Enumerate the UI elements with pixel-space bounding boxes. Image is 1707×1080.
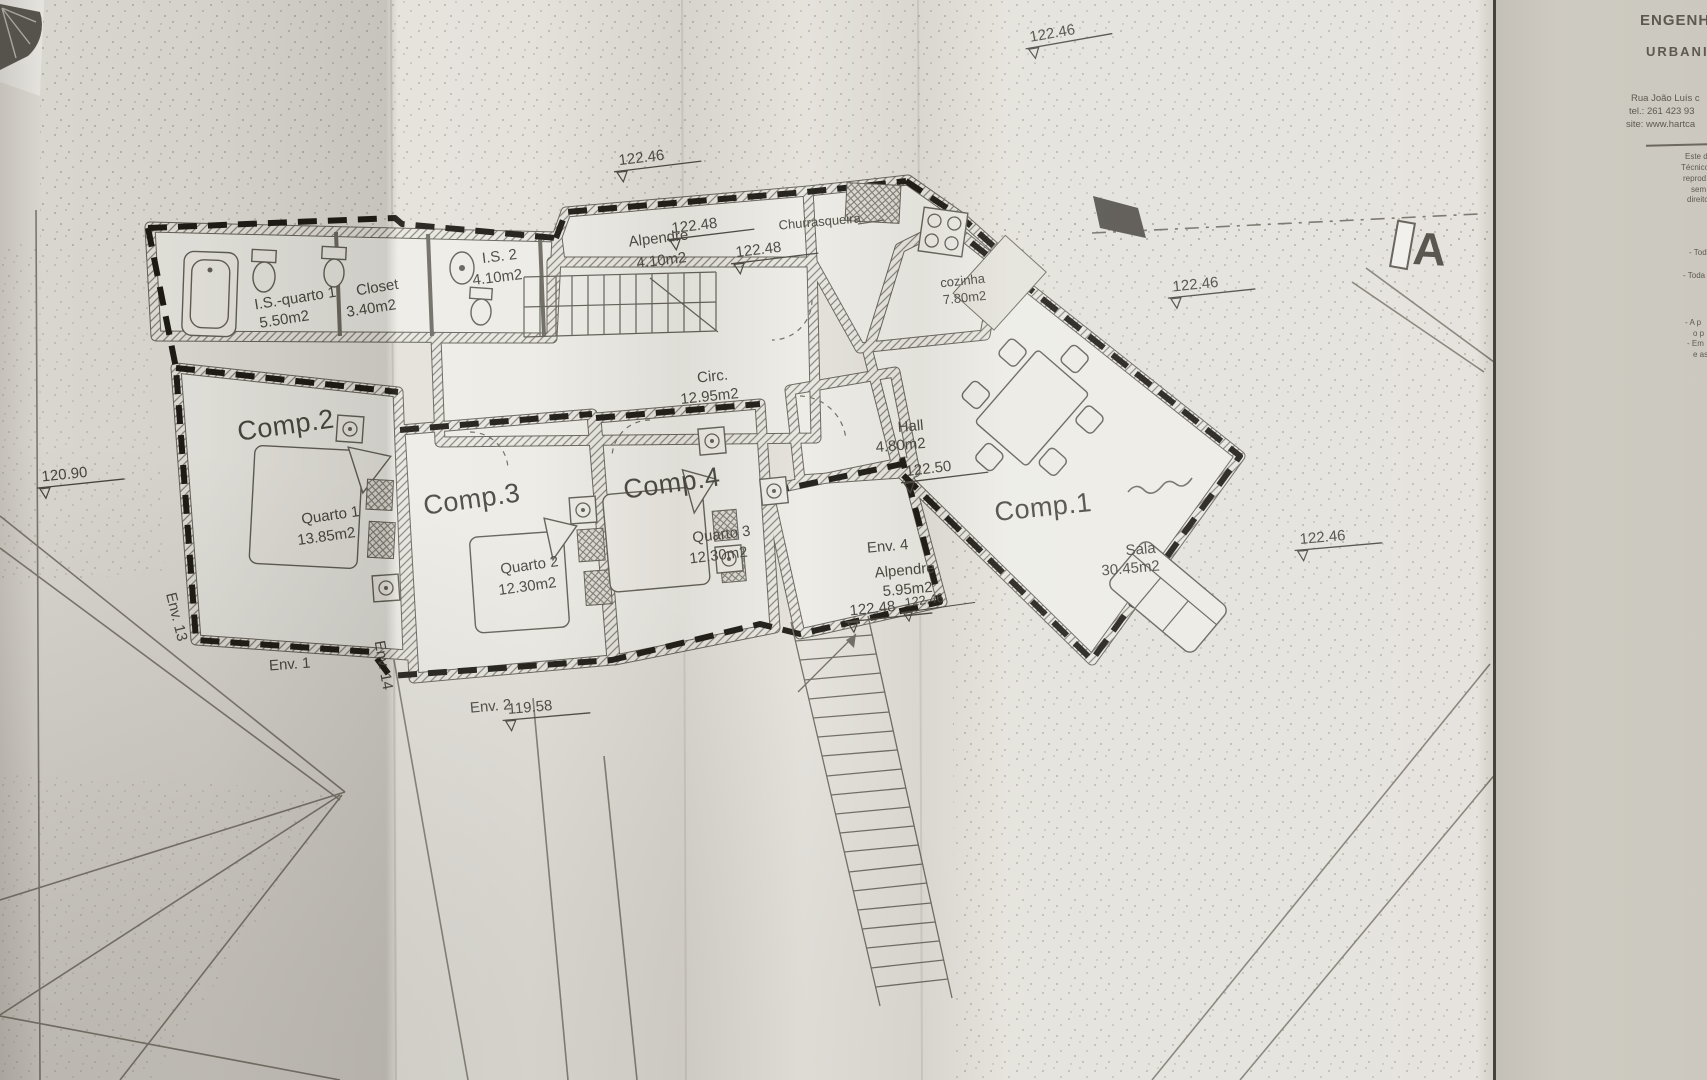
svg-text:119.58: 119.58: [507, 697, 553, 718]
stove-icon: [918, 207, 968, 257]
title-block-bullet: - A p: [1685, 318, 1701, 327]
label-env4: Env. 4: [866, 536, 909, 557]
label-env1: Env. 1: [268, 655, 311, 675]
elevation-marker: 119.58: [501, 694, 591, 732]
label-hall: Hall: [897, 417, 924, 436]
title-block-note: direito: [1687, 195, 1707, 204]
title-block-note: sem: [1691, 185, 1706, 194]
title-block-bullet: - Toda: [1683, 271, 1705, 280]
folded-corner-fan: [0, 0, 44, 96]
title-block-address: Rua João Luís c: [1631, 93, 1700, 104]
label-sala: Sala: [1125, 540, 1157, 560]
label-circ: Circ.: [696, 366, 728, 386]
toilet-icon: [252, 249, 277, 292]
label-env2: Env. 2: [469, 696, 512, 717]
title-block-note: Este d: [1685, 152, 1707, 161]
floor-plan-drawing: A I.S.-quarto 1 5.50m2 Closet 3.40m2 I.S…: [0, 0, 1707, 1080]
title-block-bullet: - Em: [1687, 339, 1704, 348]
title-block-phone: tel.: 261 423 93: [1629, 106, 1695, 117]
title-block-note: reprod: [1683, 174, 1706, 183]
title-block-divider: [1646, 143, 1707, 147]
title-block-note: Técnico: [1681, 163, 1707, 172]
exterior-stair: [791, 616, 952, 1006]
title-block-heading1: ENGENHA: [1640, 12, 1707, 29]
bed-quarto1: [249, 442, 399, 570]
section-letter: A: [1411, 222, 1447, 276]
title-block: ENGENHA URBANIS Rua João Luís c tel.: 26…: [1493, 0, 1707, 1080]
toilet-icon: [470, 287, 493, 325]
title-block-bullet: o p: [1693, 329, 1704, 338]
title-block-website: site: www.hartca: [1626, 119, 1695, 130]
label-env13: Env. 13: [162, 591, 191, 643]
title-block-bullet: - Tod: [1689, 248, 1707, 257]
title-block-heading2: URBANIS: [1646, 44, 1707, 59]
floor-plan-photo: { "section_label": "A", "title_block": {…: [0, 0, 1707, 1080]
bidet-icon: [322, 246, 347, 287]
title-block-bullet: e as: [1693, 350, 1707, 359]
section-marker-a: A: [1390, 221, 1447, 276]
